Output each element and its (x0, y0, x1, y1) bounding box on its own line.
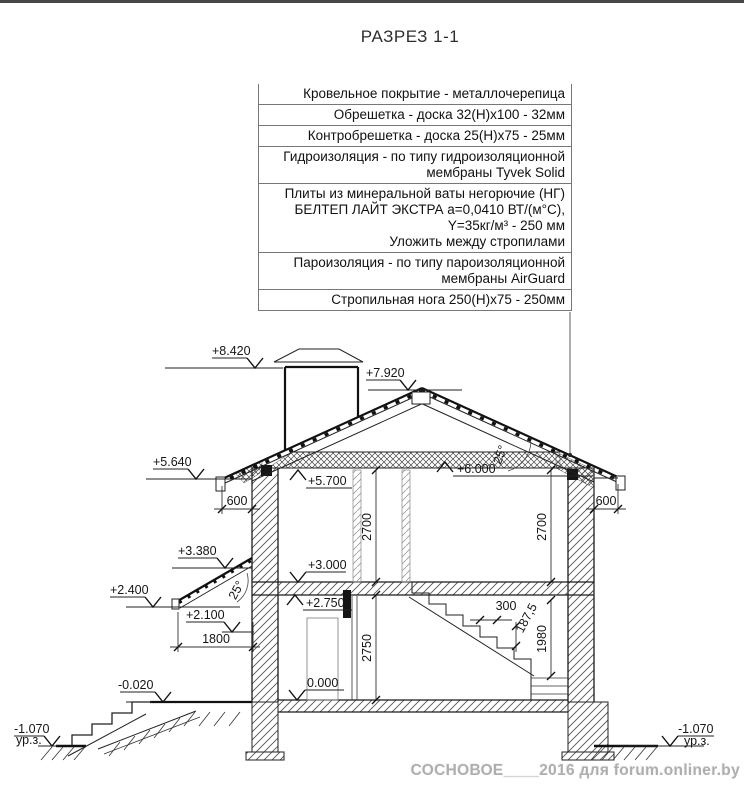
level-marks: +8.420 +7.920 +5.640 +5.700 +6.000 (14, 344, 714, 748)
dim-label-tread: 300 (496, 599, 517, 613)
ground-level-label-left: ур.з. (16, 733, 42, 747)
level-mark-eaves-left: +5.640 (146, 455, 222, 479)
watermark: СОСНОВОЕ____2016 для forum.onliner.by (411, 762, 740, 780)
level-label-ceiling2: +5.700 (308, 474, 347, 488)
level-mark-ceiling2: +5.700 (290, 470, 352, 488)
level-label-ceiling1: +2.750 (306, 596, 345, 610)
dim-label-porch-width: 1800 (202, 632, 230, 646)
level-mark-porch: -0.020 (118, 678, 171, 702)
legend-line: Обрешетка - доска 32(Н)х100 - 32мм (261, 107, 565, 123)
legend-row: Пароизоляция - по типу пароизоляционной … (259, 253, 571, 290)
level-label-canopy-top: +3.380 (178, 544, 217, 558)
legend-line: Y=35кг/м³ - 250 мм (261, 218, 565, 234)
level-label-door-top: +2.100 (186, 608, 225, 622)
ridge-vent (412, 392, 430, 404)
legend-line: мембраны AirGuard (261, 271, 565, 287)
level-mark-ceiling1: +2.750 (287, 595, 352, 610)
legend-line: Плиты из минеральной ваты негорючие (НГ) (261, 186, 565, 202)
level-label-eaves-left: +5.640 (153, 455, 192, 469)
legend-line: Пароизоляция - по типу пароизоляционной (261, 255, 565, 271)
roof-layers-legend: Кровельное покрытие - металлочерепица Об… (258, 84, 572, 311)
dim-label-eaves-left: 600 (227, 494, 248, 508)
legend-line: БЕЛТЕП ЛАЙТ ЭКСТРА а=0,0410 ВТ/(м°С), (261, 202, 565, 218)
level-mark-floor2: +3.000 (286, 558, 347, 582)
legend-row: Обрешетка - доска 32(Н)х100 - 32мм (259, 105, 571, 126)
legend-line: Контробрешетка - доска 25(Н)х75 - 25мм (261, 128, 565, 144)
legend-row: Плиты из минеральной ваты негорючие (НГ)… (259, 184, 571, 253)
dim-label-room1: 2750 (360, 634, 374, 662)
ground-level-label-right: ур.з. (684, 734, 710, 748)
level-label-chimney-top: +8.420 (212, 344, 251, 358)
level-mark-ridge: +7.920 (366, 366, 462, 390)
partition-2f-right (402, 470, 410, 582)
chimney-cap (274, 349, 363, 362)
dim-label-stair-height: 1980 (535, 625, 549, 653)
level-label-porch: -0.020 (118, 678, 153, 692)
legend-row: Кровельное покрытие - металлочерепица (259, 84, 571, 105)
legend-row: Гидроизоляция - по типу гидроизоляционно… (259, 147, 571, 184)
level-mark-floor1: 0.000 (289, 676, 344, 700)
legend-row: Стропильная нога 250(Н)х75 - 250мм (259, 290, 571, 311)
level-mark-chimney-top: +8.420 (165, 344, 283, 368)
dim-label-room2-left: 2700 (360, 513, 374, 541)
dim-label-room2-right: 2700 (535, 513, 549, 541)
level-label-floor2: +3.000 (308, 558, 347, 572)
level-label-attic-floor: +6.000 (457, 462, 496, 476)
legend-row: Контробрешетка - доска 25(Н)х75 - 25мм (259, 126, 571, 147)
legend-line: Гидроизоляция - по типу гидроизоляционно… (261, 149, 565, 165)
level-mark-ground-left: -1.070 ур.з. (14, 722, 60, 747)
legend-line: Уложить между стропилами (261, 234, 565, 250)
dim-label-eaves-right: 600 (596, 494, 617, 508)
section-drawing-page: РАЗРЕЗ 1-1 (0, 0, 744, 800)
legend-line: Кровельное покрытие - металлочерепица (261, 86, 565, 102)
level-label-canopy-low: +2.400 (110, 583, 149, 597)
level-label-ridge: +7.920 (366, 366, 405, 380)
angle-label-canopy: 25° (226, 578, 247, 601)
legend-leader (568, 312, 572, 457)
legend-line: Стропильная нога 250(Н)х75 - 250мм (261, 292, 565, 308)
level-mark-door-top: +2.100 (186, 608, 254, 632)
level-mark-ground-right: -1.070 ур.з. (632, 722, 714, 748)
level-label-floor1: 0.000 (307, 676, 338, 690)
legend-line: мембраны Tyvek Solid (261, 165, 565, 181)
exterior-stairs (68, 702, 252, 756)
